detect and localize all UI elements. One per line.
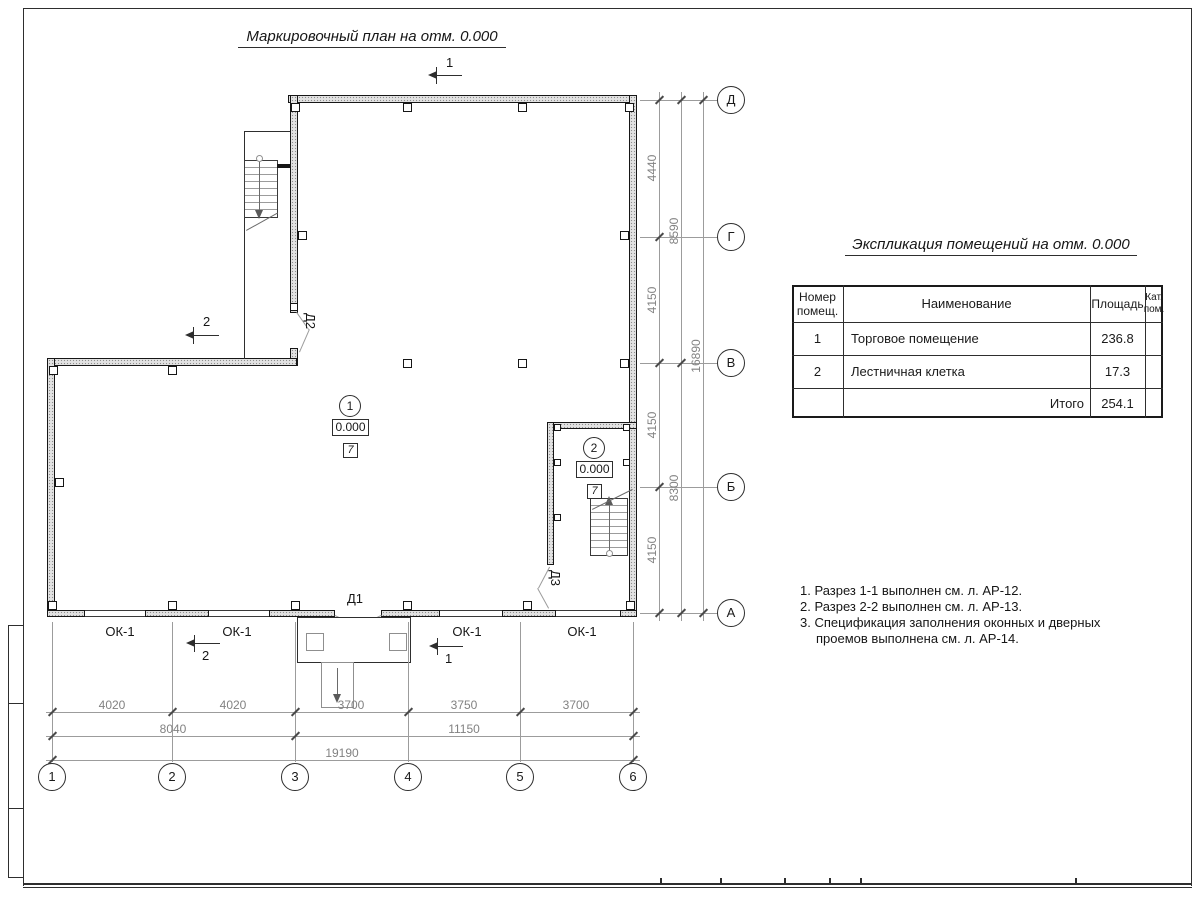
margin-stamp-divider-1: [8, 703, 24, 704]
stair-direction-arrow-icon: [255, 210, 263, 219]
room-2-floor-type: 7: [587, 484, 602, 499]
table-row-num: 2: [792, 355, 843, 388]
ext-line: [172, 622, 173, 762]
column-marker: [523, 601, 532, 610]
stair-tread: [245, 167, 277, 168]
column-marker: [55, 478, 64, 487]
room-2-number: 2: [583, 437, 605, 459]
section-2-left-label: 2: [203, 314, 210, 329]
dim-value: 4150: [645, 520, 659, 580]
wall-south-pier: [381, 610, 440, 617]
titleblock-tick: [829, 878, 831, 883]
column-marker: [625, 103, 634, 112]
wall-wing-north: [47, 358, 297, 366]
column-marker: [518, 103, 527, 112]
column-marker: [403, 601, 412, 610]
wall-west-lower: [47, 358, 55, 617]
axis-col-circle: 3: [281, 763, 309, 791]
titleblock-tick: [784, 878, 786, 883]
note-line: проемов выполнена см. л. АР-14.: [816, 631, 1019, 646]
window-ok1: [209, 610, 269, 617]
section-1-top-arrow-icon: [428, 71, 437, 79]
titleblock-tick: [720, 878, 722, 883]
titleblock-tick: [1075, 878, 1077, 883]
porch-column: [389, 633, 407, 651]
wall-south-pier: [145, 610, 209, 617]
dim-value: 8590: [667, 201, 681, 261]
margin-stamp-boxes: [8, 625, 24, 878]
column-marker: [291, 103, 300, 112]
window-ok1: [85, 610, 145, 617]
frame-bottom-2: [23, 887, 1192, 888]
wall-south-pier: [269, 610, 335, 617]
window-label-ok1: ОК-1: [100, 624, 140, 639]
window-ok1: [440, 610, 502, 617]
ext-line: [633, 622, 634, 762]
column-marker: [554, 514, 561, 521]
titleblock-tick: [660, 878, 662, 883]
axis-row-circle: Г: [717, 223, 745, 251]
ext-line: [295, 622, 296, 762]
axis-row-circle: Б: [717, 473, 745, 501]
wall-south-pier: [47, 610, 85, 617]
section-1-top-line: [436, 75, 462, 76]
room-1-floor-type: 7: [343, 443, 358, 458]
dim-value: 4020: [203, 698, 263, 712]
door-d3-label: Д3: [548, 570, 563, 586]
table-total-area: 254.1: [1090, 388, 1145, 418]
dim-value: 19190: [312, 746, 372, 760]
note-line: 1. Разрез 1-1 выполнен см. л. АР-12.: [800, 583, 1022, 598]
table-header-num: Номерпомещ.: [792, 285, 843, 322]
section-1-bottom-label: 1: [445, 651, 452, 666]
column-marker: [291, 601, 300, 610]
section-2-bottom-arrow-icon: [186, 639, 195, 647]
note-line: 3. Спецификация заполнения оконных и две…: [800, 615, 1100, 630]
plan-title: Маркировочный план на отм. 0.000: [238, 28, 506, 48]
titleblock-tick: [860, 878, 862, 883]
annex-outline-top: [244, 131, 290, 132]
axis-row-circle: Д: [717, 86, 745, 114]
window-label-ok1: ОК-1: [447, 624, 487, 639]
dim-value: 8040: [143, 722, 203, 736]
column-marker: [168, 601, 177, 610]
dim-value: 16890: [689, 326, 703, 386]
axis-col-circle: 1: [38, 763, 66, 791]
dim-line-h2: [46, 736, 640, 737]
ext-line: [408, 622, 409, 762]
column-marker: [554, 424, 561, 431]
room-2-elevation: 0.000: [576, 461, 613, 478]
door-d1-label: Д1: [347, 591, 363, 606]
column-marker: [48, 601, 57, 610]
wall-stairroom-west: [547, 422, 554, 565]
dim-value: 4150: [645, 270, 659, 330]
room-1-elevation: 0.000: [332, 419, 369, 436]
column-marker: [623, 424, 630, 431]
dim-line-v2: [681, 92, 682, 621]
column-marker: [620, 231, 629, 240]
wall-north: [288, 95, 637, 103]
axis-row-circle: А: [717, 599, 745, 627]
stair-start-dot: [606, 550, 613, 557]
frame-right: [1191, 8, 1192, 886]
table-title: Экспликация помещений на отм. 0.000: [845, 236, 1137, 256]
section-2-left-arrow-icon: [185, 331, 194, 339]
section-2-bottom-label: 2: [202, 648, 209, 663]
wall-south-pier: [502, 610, 556, 617]
column-marker: [554, 459, 561, 466]
stair-tread: [245, 174, 277, 175]
dim-value: 3700: [546, 698, 606, 712]
window-label-ok1: ОК-1: [562, 624, 602, 639]
door-d2-label: Д2: [303, 313, 318, 329]
table-header-cat: Кат.пом.: [1145, 285, 1163, 322]
dim-line-h1: [46, 712, 640, 713]
column-marker: [626, 601, 635, 610]
stair-landing-edge: [277, 164, 290, 168]
axis-col-circle: 2: [158, 763, 186, 791]
stair-tread: [245, 195, 277, 196]
dim-value: 4440: [645, 138, 659, 198]
table-header-name: Наименование: [843, 285, 1090, 322]
dim-value: 4150: [645, 395, 659, 455]
dim-line-v3: [703, 92, 704, 621]
door-d2-leaf: [299, 329, 310, 352]
column-marker: [168, 366, 177, 375]
dim-value: 3700: [321, 698, 381, 712]
stair-direction-line: [609, 502, 610, 552]
table-row-name: Торговое помещение: [843, 322, 1090, 355]
dim-value: 8300: [667, 458, 681, 518]
ext-line: [52, 622, 53, 762]
section-1-top-label: 1: [446, 55, 453, 70]
frame-top: [23, 8, 1192, 9]
room-1-number: 1: [339, 395, 361, 417]
porch-column: [306, 633, 324, 651]
stair-start-dot: [256, 155, 263, 162]
table-row-name: Лестничная клетка: [843, 355, 1090, 388]
stair-direction-line: [259, 162, 260, 212]
stair-tread: [245, 202, 277, 203]
dim-value: 4020: [82, 698, 142, 712]
dim-value: 11150: [434, 722, 494, 736]
section-2-left-line: [193, 335, 219, 336]
wall-west-upper: [290, 95, 298, 313]
entry-arrow-line: [337, 668, 338, 696]
stair-tread: [245, 181, 277, 182]
column-marker: [623, 459, 630, 466]
table-row-area: 17.3: [1090, 355, 1145, 388]
floor-plan-sheet: Маркировочный план на отм. 0.000 Эксплик…: [0, 0, 1200, 900]
axis-col-circle: 6: [619, 763, 647, 791]
note-line: 2. Разрез 2-2 выполнен см. л. АР-13.: [800, 599, 1022, 614]
column-free: [403, 359, 412, 368]
wall-east: [629, 95, 637, 617]
section-1-bottom-line: [437, 646, 463, 647]
table-row-area: 236.8: [1090, 322, 1145, 355]
column-free: [518, 359, 527, 368]
margin-stamp-divider-2: [8, 808, 24, 809]
axis-row-circle: В: [717, 349, 745, 377]
stair-tread: [245, 188, 277, 189]
column-marker: [298, 231, 307, 240]
dim-line-h3: [46, 760, 640, 761]
wall-end-cap: [290, 303, 298, 311]
wall-south-pier: [620, 610, 637, 617]
frame-bottom: [23, 883, 1192, 885]
window-label-ok1: ОК-1: [217, 624, 257, 639]
section-1-bottom-arrow-icon: [429, 642, 438, 650]
axis-col-circle: 5: [506, 763, 534, 791]
section-2-bottom-line: [194, 643, 220, 644]
dim-value: 3750: [434, 698, 494, 712]
axis-col-circle: 4: [394, 763, 422, 791]
column-marker: [403, 103, 412, 112]
window-ok1: [556, 610, 620, 617]
table-header-area: Площадь: [1090, 285, 1145, 322]
dim-line-v1: [659, 92, 660, 621]
table-total-label: Итого: [843, 388, 1090, 418]
table-row-num: 1: [792, 322, 843, 355]
door-d3-leaf: [537, 588, 549, 609]
column-marker: [620, 359, 629, 368]
column-marker: [49, 366, 58, 375]
ext-line: [520, 622, 521, 762]
